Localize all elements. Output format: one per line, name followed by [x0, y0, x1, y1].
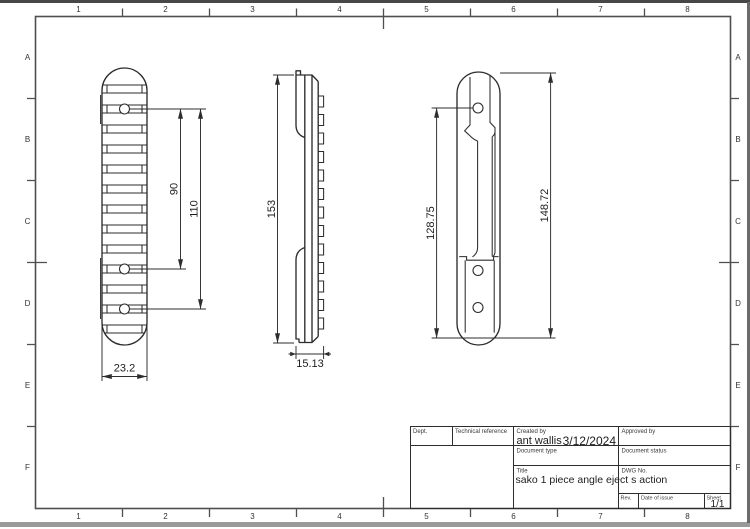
dimension-label-110: 110 — [189, 200, 201, 218]
dimension-label-148.72: 148.72 — [539, 189, 551, 223]
screw-hole — [473, 303, 483, 313]
document-type-label: Document type — [517, 449, 558, 455]
title-block: Dept. Technical reference Created by ant… — [411, 427, 731, 511]
dimension-label-23.2: 23.2 — [114, 363, 135, 375]
technical-reference-label: Technical reference — [455, 429, 508, 435]
screw-hole — [120, 104, 130, 114]
rev-label: Rev. — [621, 496, 632, 502]
rail-cross-slots — [102, 85, 147, 333]
extension-lines — [273, 75, 324, 359]
screw-hole — [120, 304, 130, 314]
dwg-no-label: DWG No. — [622, 469, 648, 475]
drawing-sheet: 1 2 3 4 5 6 7 8 1 2 3 4 5 6 7 8 A B C D … — [0, 0, 750, 529]
dept-label: Dept. — [413, 429, 428, 435]
side-view: 153 15.13 — [266, 71, 331, 370]
rail-teeth — [318, 96, 323, 329]
top-view: 90 110 23.2 — [101, 68, 206, 381]
screw-hole — [473, 266, 483, 276]
document-status-label: Document status — [622, 449, 667, 455]
screw-hole — [473, 103, 483, 113]
created-date: 3/12/2024 — [563, 434, 617, 448]
dimension-label-15.13: 15.13 — [296, 358, 324, 370]
sheet-value: 1/1 — [711, 499, 725, 510]
created-by-value: ant wallis — [517, 435, 563, 447]
dimension-label-153: 153 — [266, 200, 278, 218]
dimension-label-128.75: 128.75 — [425, 206, 437, 240]
drawing-canvas: 90 110 23.2 153 15.13 128.75 148.7 — [0, 0, 750, 529]
bottom-view: 128.75 148.72 — [425, 72, 556, 345]
screw-hole — [120, 264, 130, 274]
title-value: sako 1 piece angle eject s action — [516, 474, 668, 486]
side-profile-outline — [296, 71, 318, 343]
dimension-label-90: 90 — [169, 183, 181, 195]
approved-by-label: Approved by — [622, 429, 656, 435]
date-of-issue-label: Date of issue — [641, 496, 673, 502]
mount-inner-profile — [459, 76, 498, 333]
